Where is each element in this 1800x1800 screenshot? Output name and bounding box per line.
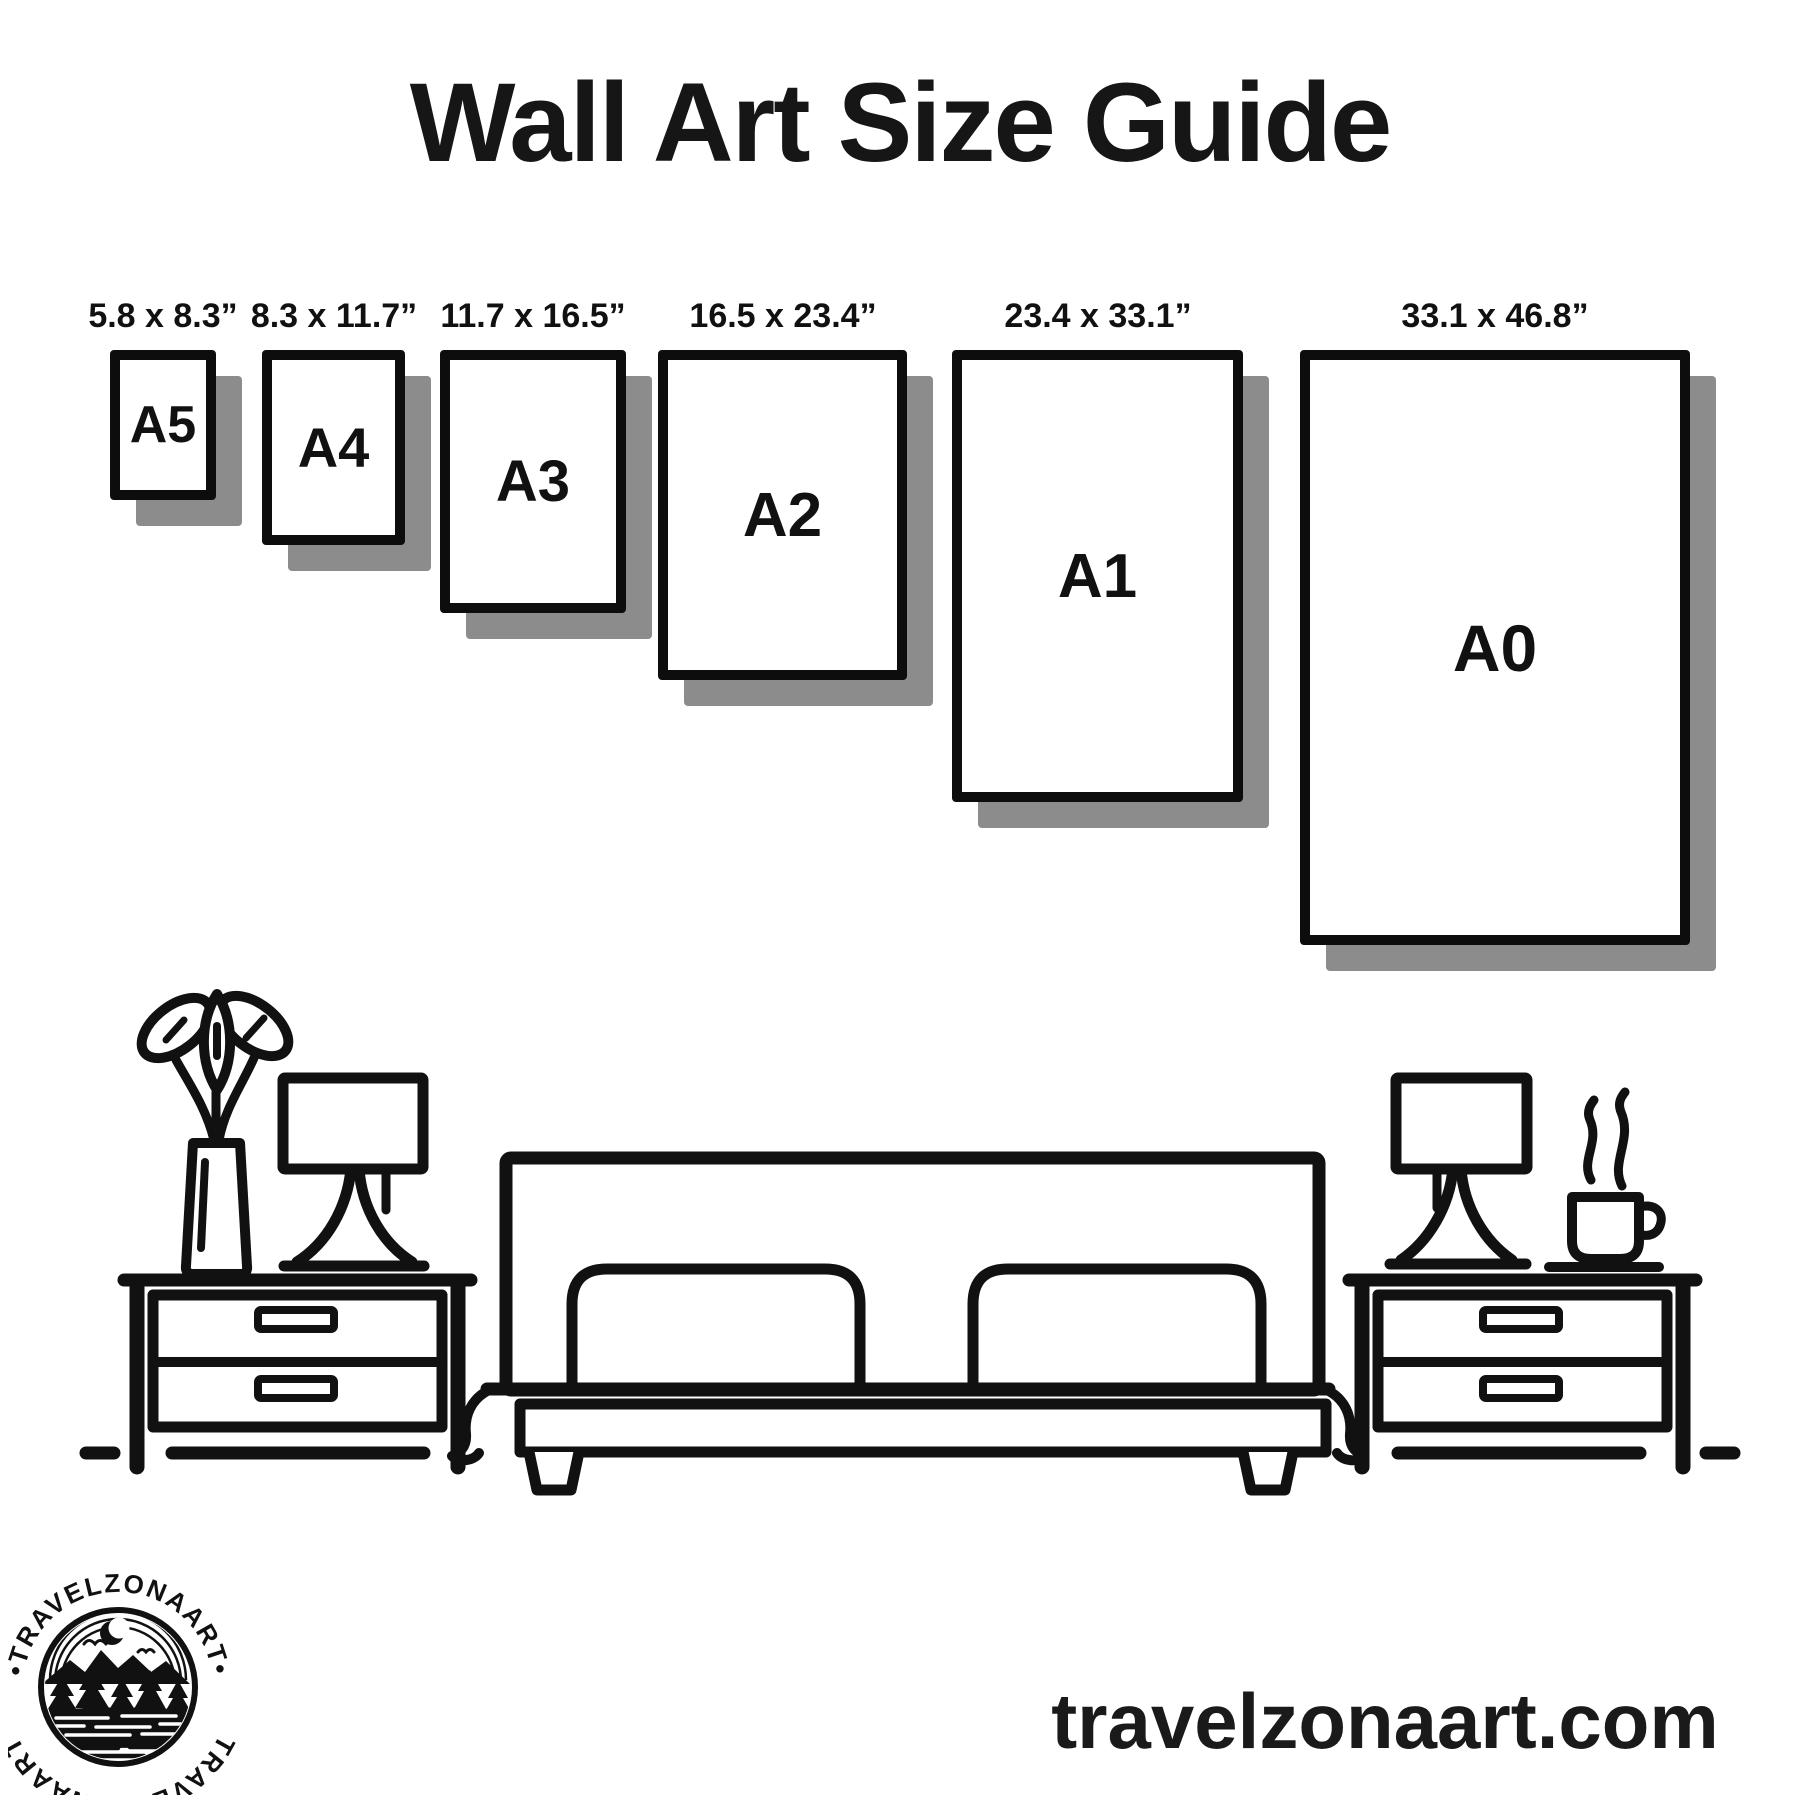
lake-icon (42, 1708, 194, 1757)
frame-a2-label: A2 (743, 480, 822, 551)
drawer-handle-icon (258, 1310, 334, 1329)
pillow-icon (572, 1269, 860, 1390)
bed-leg (1243, 1452, 1293, 1490)
bed-base (520, 1404, 1326, 1452)
size-label-a1: 23.4 x 33.1” (938, 297, 1258, 336)
size-label-a2: 16.5 x 23.4” (623, 297, 943, 336)
table-lamp-icon (283, 1078, 424, 1266)
frame-a5-label: A5 (130, 395, 196, 455)
bed-leg (529, 1452, 579, 1490)
size-label-a0: 33.1 x 46.8” (1335, 297, 1655, 336)
page-title: Wall Art Size Guide (0, 58, 1800, 187)
table-lamp-icon (1390, 1078, 1527, 1264)
website-url: travelzonaart.com (1051, 1676, 1719, 1767)
travelzonaart-logo: •TRAVELZONAART• TRAVELZONAART (8, 1545, 238, 1795)
coffee-cup-icon (1549, 1092, 1661, 1267)
frame-a1-label: A1 (1058, 541, 1137, 612)
bedroom-scene-illustration (0, 960, 1800, 1520)
potted-plant-icon (131, 984, 299, 1274)
frame-a4: A4 (262, 350, 405, 545)
drawer-handle-icon (1483, 1379, 1559, 1398)
nightstand-icon (1349, 1280, 1696, 1467)
nightstand-icon (124, 1280, 471, 1467)
steam-icon (1588, 1100, 1594, 1180)
wall-art-size-guide-poster: Wall Art Size Guide 5.8 x 8.3” 8.3 x 11.… (0, 0, 1800, 1800)
frame-a3-label: A3 (496, 448, 570, 515)
drawer-handle-icon (258, 1379, 334, 1398)
frame-a0: A0 (1300, 350, 1690, 945)
drawer-handle-icon (1483, 1310, 1559, 1329)
frame-a2: A2 (658, 350, 907, 680)
frame-a3: A3 (440, 350, 626, 613)
frame-a1: A1 (952, 350, 1243, 802)
frame-a4-label: A4 (298, 415, 370, 480)
steam-icon (1618, 1092, 1625, 1186)
frame-a5: A5 (110, 350, 216, 500)
double-bed-icon (452, 1158, 1364, 1490)
frame-a0-label: A0 (1453, 610, 1537, 686)
pillow-icon (973, 1269, 1261, 1390)
